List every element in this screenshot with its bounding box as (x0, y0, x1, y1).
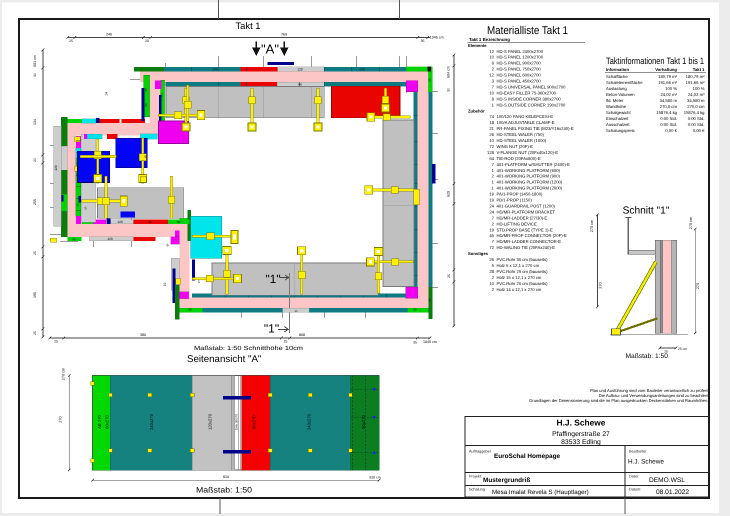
svg-text:Auftraggeber: Auftraggeber (469, 450, 492, 454)
svg-text:PVC.Rohr 25 cm (bauseits): PVC.Rohr 25 cm (bauseits) (497, 269, 549, 274)
svg-text:WING NUT (20F)-E: WING NUT (20F)-E (497, 144, 534, 149)
svg-text:26: 26 (489, 132, 494, 137)
svg-text:HD-S UNIVERSAL PANEL 900x2700: HD-S UNIVERSAL PANEL 900x2700 (497, 84, 567, 89)
svg-text:V-FLANGE NUT (20Fx40x120)-E: V-FLANGE NUT (20Fx40x120)-E (497, 150, 559, 155)
svg-text:270,0 cm: 270,0 cm (660, 104, 678, 109)
svg-text:Materialliste Takt 1: Materialliste Takt 1 (487, 25, 568, 37)
svg-text:120x270: 120x270 (208, 413, 213, 430)
svg-text:14: 14 (105, 92, 109, 96)
svg-text:PA/1-PROP (1450-1800): PA/1-PROP (1450-1800) (497, 192, 544, 197)
svg-text:Information: Information (606, 67, 629, 72)
svg-text:Schalfläche: Schalfläche (606, 74, 628, 79)
svg-text:380: 380 (140, 333, 146, 337)
svg-text:0,00 €: 0,00 € (693, 128, 705, 133)
svg-text:"A": "A" (261, 42, 279, 57)
svg-text:HD-EASY FILLER 75-360x2700: HD-EASY FILLER 75-360x2700 (497, 90, 557, 95)
svg-text:Auslastung: Auslastung (606, 86, 627, 91)
svg-text:Holz 5 x 12,1 x 270 cm: Holz 5 x 12,1 x 270 cm (497, 263, 540, 268)
svg-text:HD-S PANEL 1200x2700: HD-S PANEL 1200x2700 (497, 55, 544, 60)
svg-text:270 cm: 270 cm (62, 368, 66, 380)
svg-text:25 cm: 25 cm (678, 347, 687, 351)
svg-text:60: 60 (413, 308, 417, 312)
svg-text:10: 10 (489, 55, 494, 60)
svg-text:128: 128 (487, 150, 495, 155)
svg-text:HD-WALING TIE (20FAx240)-E: HD-WALING TIE (20FAx240)-E (497, 245, 556, 250)
svg-text:604 cm: 604 cm (447, 66, 451, 78)
svg-text:Mesa Imalat Revela S (Hauptlag: Mesa Imalat Revela S (Hauptlager) (492, 489, 589, 496)
svg-text:Holz 15 x 12,1 x 270 cm: Holz 15 x 12,1 x 270 cm (497, 275, 542, 280)
svg-text:Einschalzeit: Einschalzeit (606, 116, 629, 121)
svg-text:25: 25 (447, 274, 451, 278)
svg-text:34,580 m: 34,580 m (687, 98, 705, 103)
svg-text:Holz 14 x 12,1 x 270 cm: Holz 14 x 12,1 x 270 cm (497, 287, 542, 292)
svg-text:Elemente: Elemente (468, 43, 487, 48)
svg-text:0:00 Std.: 0:00 Std. (688, 116, 705, 121)
svg-text:60: 60 (144, 103, 148, 107)
svg-text:15876,4 kg: 15876,4 kg (656, 110, 677, 115)
svg-text:270 cm: 270 cm (590, 220, 594, 232)
svg-text:401-PLATFORM w/SHUTTER (2400)-: 401-PLATFORM w/SHUTTER (2400)-E (497, 162, 571, 167)
svg-text:Pfaffingerstraße 27: Pfaffingerstraße 27 (552, 431, 610, 438)
svg-text:180,79 m²: 180,79 m² (686, 74, 705, 79)
svg-text:240: 240 (106, 33, 112, 37)
svg-text:401-WORKING PLATFORM (2000): 401-WORKING PLATFORM (2000) (497, 186, 563, 191)
svg-text:HD/MR-LADDER (27/30)-E: HD/MR-LADDER (27/30)-E (497, 215, 548, 220)
svg-text:0,00 €: 0,00 € (665, 128, 677, 133)
svg-text:134: 134 (33, 119, 37, 125)
svg-text:HD-STEEL WALER (750): HD-STEEL WALER (750) (497, 132, 545, 137)
svg-text:Seitenansicht "A": Seitenansicht "A" (187, 354, 262, 365)
svg-text:180,79 m²: 180,79 m² (658, 74, 677, 79)
svg-text:0:00 Std.: 0:00 Std. (660, 116, 677, 121)
svg-text:25: 25 (284, 340, 288, 344)
svg-text:34,580 m: 34,580 m (660, 98, 678, 103)
svg-text:25: 25 (54, 340, 58, 344)
svg-text:30: 30 (33, 73, 37, 77)
svg-text:30: 30 (447, 88, 451, 92)
svg-text:90x270: 90x270 (361, 414, 366, 428)
svg-text:769: 769 (281, 32, 287, 36)
svg-text:60: 60 (177, 220, 181, 224)
svg-text:Schalelementfläche: Schalelementfläche (606, 80, 643, 85)
svg-text:60: 60 (76, 203, 80, 207)
svg-text:90: 90 (148, 220, 152, 224)
svg-text:270 cm: 270 cm (689, 217, 693, 229)
svg-text:H.J. Schewe: H.J. Schewe (557, 418, 606, 428)
svg-text:401-WORKING PLATFORM (600): 401-WORKING PLATFORM (600) (497, 168, 561, 173)
svg-text:240: 240 (212, 68, 218, 72)
svg-text:35: 35 (421, 39, 425, 43)
svg-text:5: 5 (84, 207, 86, 211)
svg-text:Mustergrundriß: Mustergrundriß (483, 477, 530, 484)
svg-text:20: 20 (145, 39, 149, 43)
svg-text:255: 255 (33, 199, 37, 205)
svg-text:72: 72 (489, 144, 494, 149)
svg-text:Maßstab: 1:50: Maßstab: 1:50 (626, 353, 669, 360)
svg-text:401-WORKING PLATFORM (900): 401-WORKING PLATFORM (900) (497, 174, 561, 179)
svg-text:629: 629 (447, 191, 451, 197)
svg-text:120: 120 (107, 237, 113, 241)
svg-text:24: 24 (489, 209, 494, 214)
svg-text:60: 60 (427, 298, 431, 302)
svg-text:604 cm: 604 cm (33, 55, 37, 67)
svg-text:DEMO.WSL: DEMO.WSL (649, 477, 685, 484)
svg-text:HD-S PANEL 2400x2700: HD-S PANEL 2400x2700 (497, 49, 544, 54)
svg-text:Schnitt "1": Schnitt "1" (623, 206, 670, 217)
svg-text:Maßstab: 1:50: Maßstab: 1:50 (196, 486, 253, 495)
svg-text:Takt 1 Bezeichnung: Takt 1 Bezeichnung (469, 37, 510, 42)
svg-text:35: 35 (413, 340, 417, 344)
svg-text:191,66 m²: 191,66 m² (658, 80, 677, 85)
svg-text:Taktinformationen Takt 1 bis: Taktinformationen Takt 1 bis 1 (606, 56, 704, 66)
svg-text:HD-STEEL WALER (1000): HD-STEEL WALER (1000) (497, 138, 547, 143)
svg-text:PR-PANEL FIXING TIE (M23/Y16x2: PR-PANEL FIXING TIE (M23/Y16x240)-E (497, 126, 574, 131)
svg-text:HD/MR-PROP CONNECTOR (20F)-E: HD/MR-PROP CONNECTOR (20F)-E (497, 233, 568, 238)
svg-text:100 %: 100 % (693, 86, 705, 91)
svg-text:TIE-ROD (20FAx800)-E: TIE-ROD (20FAx800)-E (497, 156, 541, 161)
svg-text:24: 24 (489, 203, 494, 208)
svg-text:1045 cm: 1045 cm (430, 36, 444, 40)
svg-text:Sonstiges: Sonstiges (468, 251, 489, 256)
svg-text:Takt 1: Takt 1 (693, 67, 705, 72)
svg-text:270: 270 (59, 416, 63, 422)
svg-text:Beton-Volumen: Beton-Volumen (606, 92, 635, 97)
svg-text:6: 6 (166, 244, 168, 248)
svg-text:Schalgewicht: Schalgewicht (606, 110, 632, 115)
svg-text:270: 270 (696, 283, 700, 289)
svg-text:10: 10 (489, 281, 494, 286)
svg-text:15: 15 (163, 283, 167, 287)
svg-text:5: 5 (198, 280, 200, 284)
svg-text:60x270: 60x270 (105, 414, 110, 428)
svg-text:Wandhöhe: Wandhöhe (606, 104, 627, 109)
svg-text:10: 10 (489, 90, 494, 95)
svg-text:72: 72 (489, 245, 494, 250)
svg-text:195: 195 (33, 292, 37, 298)
svg-text:240: 240 (359, 68, 365, 72)
svg-text:401-GUARDRAIL POST (1200): 401-GUARDRAIL POST (1200) (497, 203, 556, 208)
svg-text:64: 64 (489, 156, 494, 161)
svg-text:120: 120 (117, 220, 123, 224)
svg-text:90x270: 90x270 (252, 414, 257, 428)
svg-text:"1": "1" (264, 322, 279, 336)
svg-text:60: 60 (427, 78, 431, 82)
svg-text:100/A ADJUSTABLE CLAMP-E: 100/A ADJUSTABLE CLAMP-E (497, 120, 555, 125)
svg-text:810: 810 (223, 475, 229, 479)
svg-text:19: 19 (489, 227, 494, 232)
svg-text:Maßstab: 1:50 Schnitthöhe 10: Maßstab: 1:50 Schnitthöhe 10cm (194, 345, 303, 352)
svg-text:60: 60 (188, 308, 192, 312)
svg-text:24,02 m³: 24,02 m³ (660, 92, 677, 97)
svg-text:08.01.2022: 08.01.2022 (656, 489, 689, 496)
svg-text:240x270: 240x270 (307, 413, 312, 430)
svg-text:Ausschalzeit: Ausschalzeit (606, 122, 630, 127)
svg-text:PVC.Rohr 30 cm (bauseits): PVC.Rohr 30 cm (bauseits) (497, 257, 549, 262)
svg-text:HD-S INSIDE CORNER 380x2700: HD-S INSIDE CORNER 380x2700 (497, 96, 562, 101)
svg-text:868: 868 (299, 333, 305, 337)
svg-text:"1": "1" (265, 272, 280, 286)
svg-text:12: 12 (489, 49, 494, 54)
svg-text:STD.PROP BASE (TYPE 1)-E: STD.PROP BASE (TYPE 1)-E (497, 227, 553, 232)
svg-text:EuroSchal Homepage: EuroSchal Homepage (494, 453, 560, 460)
svg-text:19: 19 (489, 198, 494, 203)
svg-text:Schalungspreis: Schalungspreis (606, 128, 635, 133)
svg-text:HD/MR-PLATFORM BRACKET: HD/MR-PLATFORM BRACKET (497, 209, 556, 214)
svg-text:270: 270 (599, 282, 603, 288)
svg-text:401-WORKING PLATFORM (1200): 401-WORKING PLATFORM (1200) (497, 180, 563, 185)
svg-text:Grundlagen der Dimensionierung: Grundlagen der Dimensionierung sind die … (529, 398, 708, 403)
svg-text:lfd. Meter: lfd. Meter (606, 98, 624, 103)
svg-text:Datei:: Datei: (629, 475, 639, 479)
svg-text:18: 18 (489, 120, 494, 125)
svg-text:60: 60 (144, 88, 148, 92)
svg-text:Datum:: Datum: (629, 488, 641, 492)
svg-text:5: 5 (145, 155, 147, 159)
svg-text:Einb.30/270: Einb.30/270 (234, 414, 238, 430)
svg-text:28: 28 (489, 269, 494, 274)
svg-text:HD-S PANEL 900x2700: HD-S PANEL 900x2700 (497, 61, 542, 66)
svg-text:PB/1-PROP (1150): PB/1-PROP (1150) (497, 198, 533, 203)
svg-text:100/120 PANO KELEPCESI-E: 100/120 PANO KELEPCESI-E (497, 114, 554, 119)
svg-text:HD-S PANEL 450x2700: HD-S PANEL 450x2700 (497, 79, 542, 84)
svg-text:26: 26 (489, 257, 494, 262)
svg-text:12: 12 (489, 73, 494, 78)
svg-text:Takt 1: Takt 1 (235, 20, 260, 31)
svg-text:H.J. Schewe: H.J. Schewe (628, 459, 664, 466)
svg-text:25: 25 (33, 251, 37, 255)
svg-text:25: 25 (33, 331, 37, 335)
svg-text:20: 20 (33, 158, 37, 162)
svg-text:HD-S PANEL 600x2700: HD-S PANEL 600x2700 (497, 73, 542, 78)
svg-text:HD-LIFTING DEVICE: HD-LIFTING DEVICE (497, 221, 537, 226)
svg-text:Zubehör: Zubehör (468, 108, 485, 113)
svg-text:Schalung: Schalung (469, 488, 485, 492)
svg-text:120: 120 (54, 165, 58, 171)
svg-text:100 %: 100 % (665, 86, 677, 91)
svg-text:PVC.Rohr 20 cm (bauseits): PVC.Rohr 20 cm (bauseits) (497, 281, 549, 286)
svg-text:240x270: 240x270 (149, 413, 154, 430)
svg-text:19: 19 (489, 192, 494, 197)
svg-text:21: 21 (489, 126, 494, 131)
svg-text:0:00 Std.: 0:00 Std. (660, 122, 677, 127)
svg-text:HD-S PANEL 750x2700: HD-S PANEL 750x2700 (497, 67, 542, 72)
svg-text:83533 Edling: 83533 Edling (561, 439, 601, 446)
svg-text:Bearbeiter: Bearbeiter (629, 450, 647, 454)
svg-text:10: 10 (489, 138, 494, 143)
svg-text:60: 60 (160, 93, 164, 97)
svg-text:1045 cm: 1045 cm (423, 340, 437, 344)
svg-text:191,66 m²: 191,66 m² (686, 80, 705, 85)
svg-text:HD-S OUTSIDE CORNER 190x2700: HD-S OUTSIDE CORNER 190x2700 (497, 102, 567, 107)
svg-text:60: 60 (72, 237, 76, 241)
svg-text:270,0 cm: 270,0 cm (687, 104, 705, 109)
svg-text:15876,4 kg: 15876,4 kg (684, 110, 705, 115)
svg-text:120: 120 (297, 68, 303, 72)
svg-text:0:00 Std.: 0:00 Std. (688, 122, 705, 127)
svg-text:25: 25 (69, 39, 73, 43)
svg-text:45: 45 (489, 233, 494, 238)
svg-text:74: 74 (489, 114, 494, 119)
svg-text:AE 270: AE 270 (97, 414, 102, 428)
svg-text:Projekt:: Projekt: (469, 475, 482, 479)
svg-text:810 cm: 810 cm (370, 475, 381, 479)
svg-text:24,02 m³: 24,02 m³ (688, 92, 705, 97)
svg-text:60: 60 (298, 83, 302, 87)
svg-text:HD/MR-LADDER CONNECTOR-E: HD/MR-LADDER CONNECTOR-E (497, 239, 562, 244)
svg-text:Vorhaltung: Vorhaltung (655, 67, 677, 72)
